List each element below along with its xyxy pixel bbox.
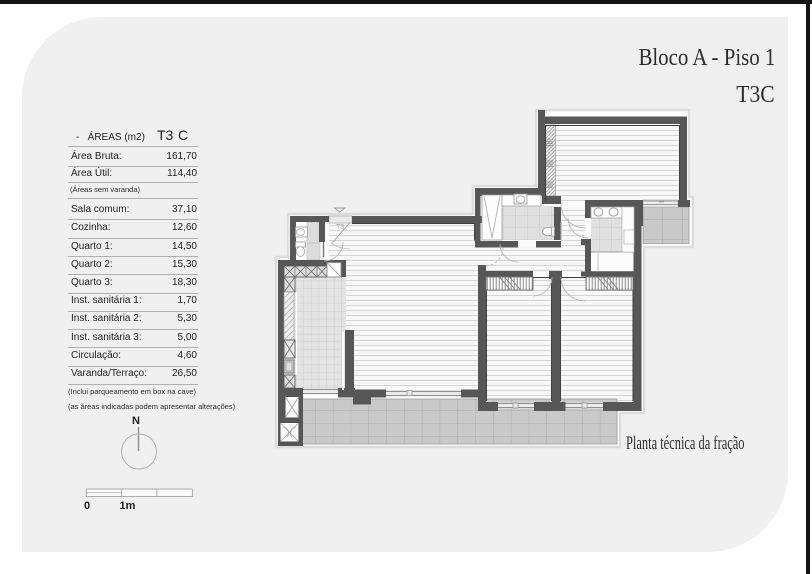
svg-text:0: 0 [84,500,90,512]
svg-text:N: N [132,415,140,427]
svg-text:1m: 1m [120,500,136,512]
